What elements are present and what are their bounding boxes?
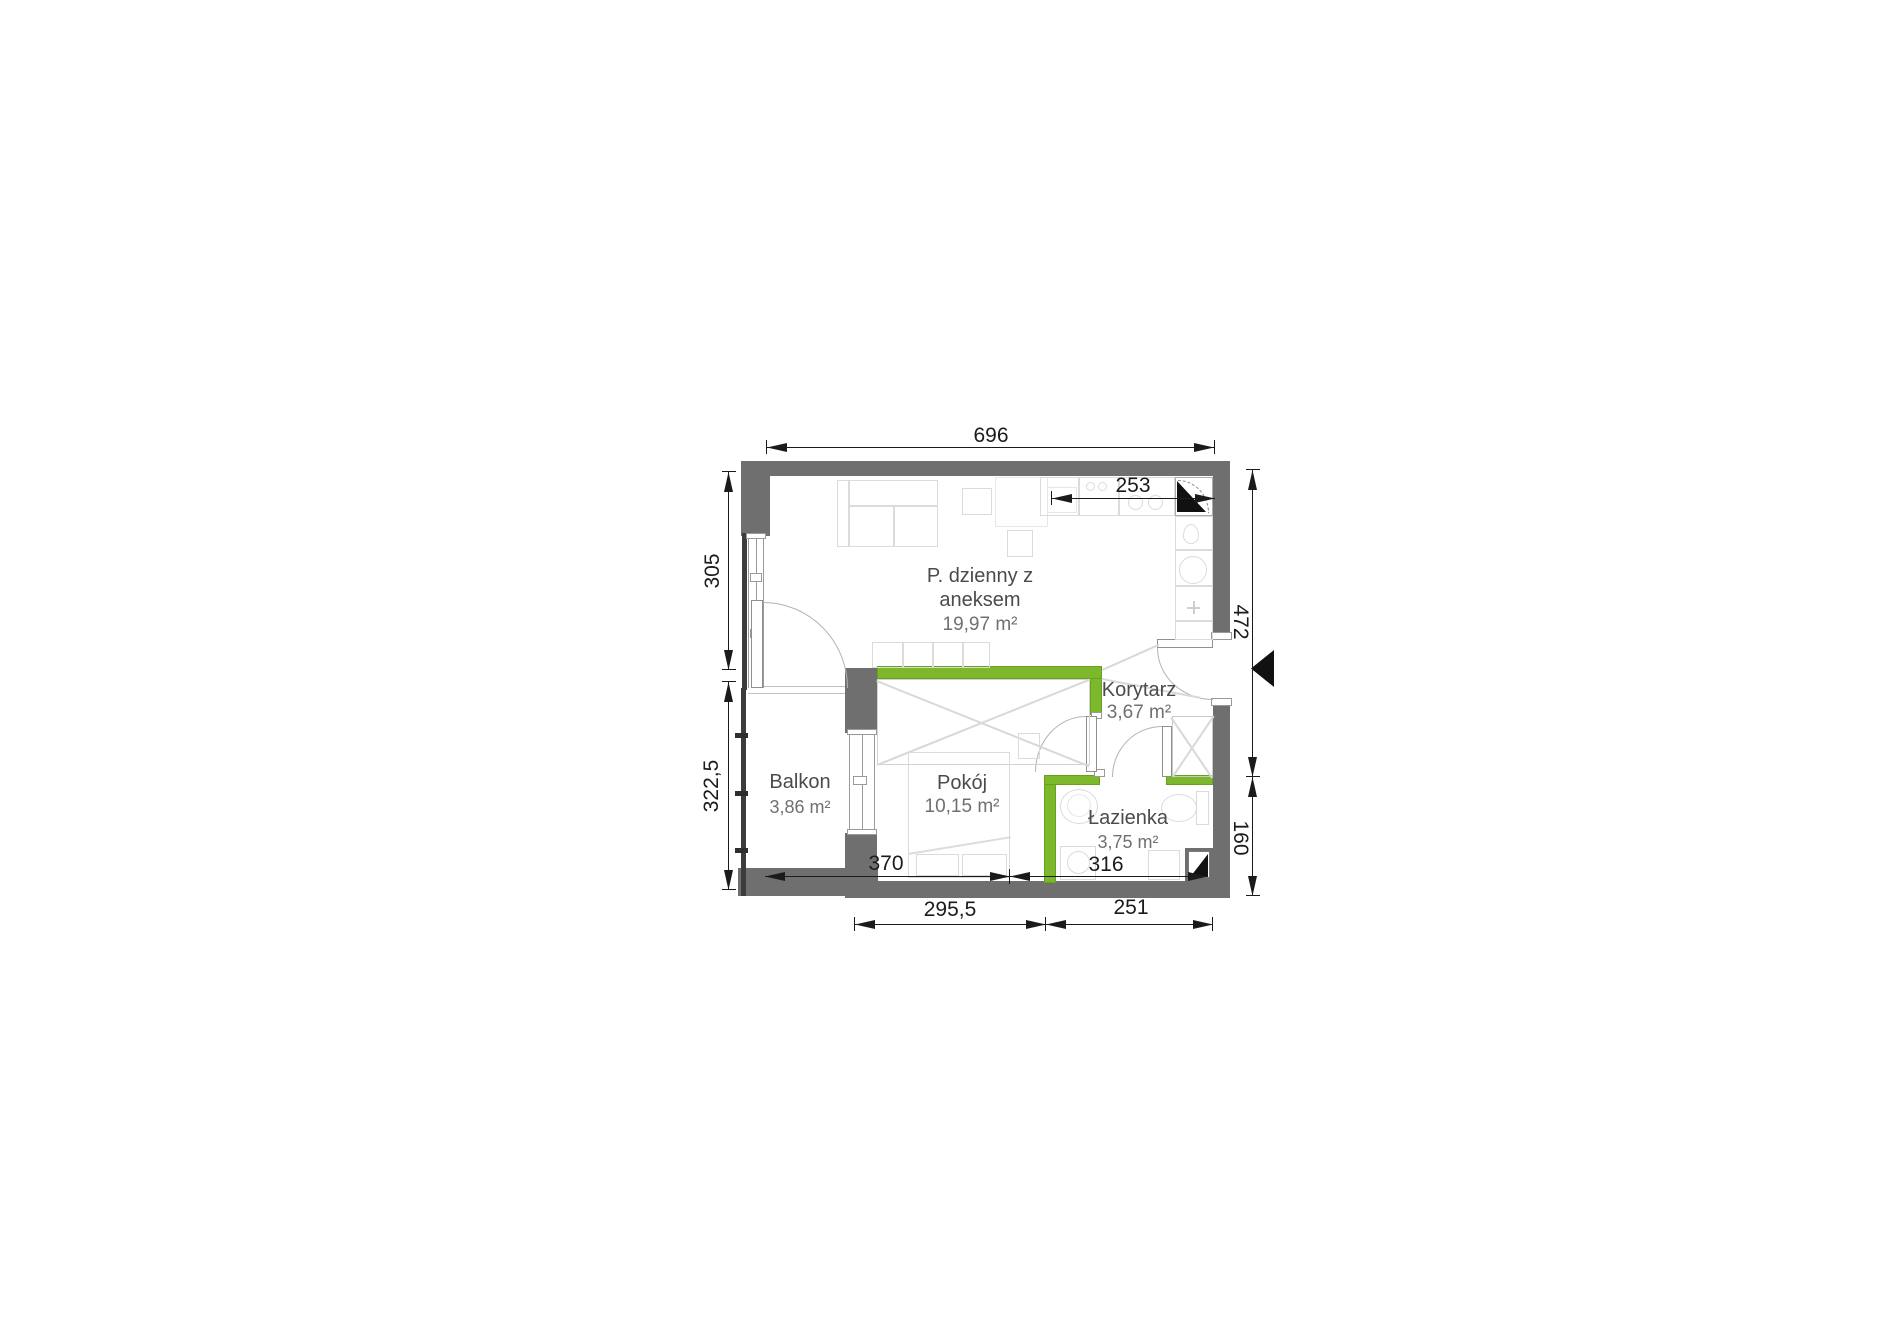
dim-arrow <box>1248 470 1257 490</box>
dim-arrow <box>1248 757 1257 777</box>
dim-label-inner-bath: 316 <box>1081 853 1131 877</box>
dim-line-left-lower <box>728 682 729 890</box>
sideboard <box>872 642 990 668</box>
floor-plan-canvas: 696 253 305 322,5 472 160 370 316 295,5 <box>0 0 1900 1343</box>
sideboard-divider <box>962 642 964 668</box>
dim-tick <box>854 917 855 931</box>
kitchen-divider <box>1175 620 1213 622</box>
kitchen-faucet <box>1183 524 1199 544</box>
room-label-pokoj: Pokój <box>902 771 1022 795</box>
dim-label-bottom-right: 251 <box>1101 896 1161 920</box>
bed-pillow <box>962 854 1007 876</box>
sofa-line <box>848 480 850 547</box>
entrance-door-leaf <box>1157 639 1213 648</box>
entry-jamb <box>1211 698 1232 706</box>
dim-arrow <box>1248 876 1257 896</box>
side-table <box>1007 530 1033 557</box>
room-area-balkon: 3,86 m² <box>740 795 860 819</box>
sideboard-divider <box>902 642 904 668</box>
window-cap <box>847 829 877 835</box>
green-wall-bath-left <box>1044 775 1056 883</box>
floor-transition-line <box>1102 644 1159 671</box>
dim-tick <box>1214 440 1215 454</box>
dim-line-left-upper <box>728 472 729 670</box>
dim-arrow <box>1193 920 1213 929</box>
dim-arrow <box>1248 777 1257 797</box>
dim-arrow <box>724 870 733 890</box>
room-label-lazienka: Łazienka <box>1068 806 1188 830</box>
kitchen-divider <box>1078 477 1080 516</box>
coffee-table <box>962 488 992 515</box>
kitchen-divider <box>1175 549 1213 551</box>
dim-line-right-upper <box>1252 470 1253 777</box>
bathroom-door-swing-arc <box>1112 726 1162 777</box>
balcony-railing-tick <box>735 733 748 738</box>
dim-arrow <box>724 650 733 670</box>
room-area-pokoj: 10,15 m² <box>902 795 1022 819</box>
balcony-door-leaf <box>751 600 763 688</box>
dim-arrow <box>1026 920 1046 929</box>
dim-tick <box>1246 469 1260 470</box>
dim-line-kitchen <box>1052 498 1215 499</box>
dim-tick <box>722 471 736 472</box>
sofa-line <box>893 505 895 547</box>
dim-label-right-lower: 160 <box>1228 798 1252 878</box>
toilet-tank <box>1196 791 1209 825</box>
dim-tick <box>1051 491 1052 505</box>
window-cap <box>746 533 766 539</box>
balcony-railing-tick <box>735 848 748 853</box>
room-area-lazienka: 3,75 m² <box>1068 830 1188 854</box>
sofa <box>837 480 938 547</box>
bathroom-door-leaf <box>1162 726 1172 777</box>
wall-left-face-line <box>742 533 747 690</box>
room-label-living: P. dzienny z aneksem <box>910 564 1050 612</box>
dim-label-right-upper: 472 <box>1228 582 1252 662</box>
dim-tick <box>722 669 736 670</box>
dim-tick <box>722 889 736 890</box>
dim-tick <box>1246 776 1260 777</box>
kitchen-divider <box>1175 585 1213 587</box>
entrance-arrow-icon <box>1251 650 1274 687</box>
dim-tick <box>1246 895 1260 896</box>
balcony-door-swing-arc <box>763 602 848 688</box>
dim-arrow <box>767 443 787 452</box>
room-area-living: 19,97 m² <box>910 613 1050 637</box>
dim-tick <box>1212 917 1213 931</box>
dim-label-inner-room: 370 <box>861 852 911 876</box>
room-label-balkon: Balkon <box>740 770 860 794</box>
window-mullion <box>750 573 762 582</box>
dim-label-left-lower: 322,5 <box>700 746 724 826</box>
window-cap <box>847 729 877 735</box>
dim-line-bottom-left <box>855 924 1046 925</box>
dim-arrow <box>1046 920 1066 929</box>
sideboard-divider <box>932 642 934 668</box>
room-label-korytarz: Korytarz <box>1079 678 1199 702</box>
dim-label-left-upper: 305 <box>701 531 725 611</box>
counter-plus-mark <box>1193 601 1195 614</box>
wall-bottom <box>845 881 1230 898</box>
dim-tick <box>766 440 767 454</box>
dim-arrow <box>1194 443 1214 452</box>
dim-label-bottom-left: 295,5 <box>908 898 992 922</box>
dim-line-bottom-right <box>1046 924 1213 925</box>
dim-arrow <box>724 472 733 492</box>
green-wall-bath-top-left <box>1044 775 1100 785</box>
dim-arrow <box>724 682 733 702</box>
balcony-threshold-line <box>748 693 845 694</box>
dim-label-top: 696 <box>960 424 1022 448</box>
dim-line-inner-room <box>765 876 1010 877</box>
dim-arrow <box>1010 872 1030 881</box>
dim-label-kitchen: 253 <box>1102 474 1164 498</box>
dim-tick <box>722 681 736 682</box>
wall-balcony-room-column-top <box>845 668 877 733</box>
dim-arrow <box>855 920 875 929</box>
kitchen-sink <box>1179 556 1207 584</box>
bed-pillow <box>916 854 959 876</box>
faucet-knob <box>1086 482 1095 491</box>
room-area-korytarz: 3,67 m² <box>1079 701 1199 725</box>
nightstand <box>1018 733 1040 759</box>
wall-left-column <box>741 461 770 536</box>
